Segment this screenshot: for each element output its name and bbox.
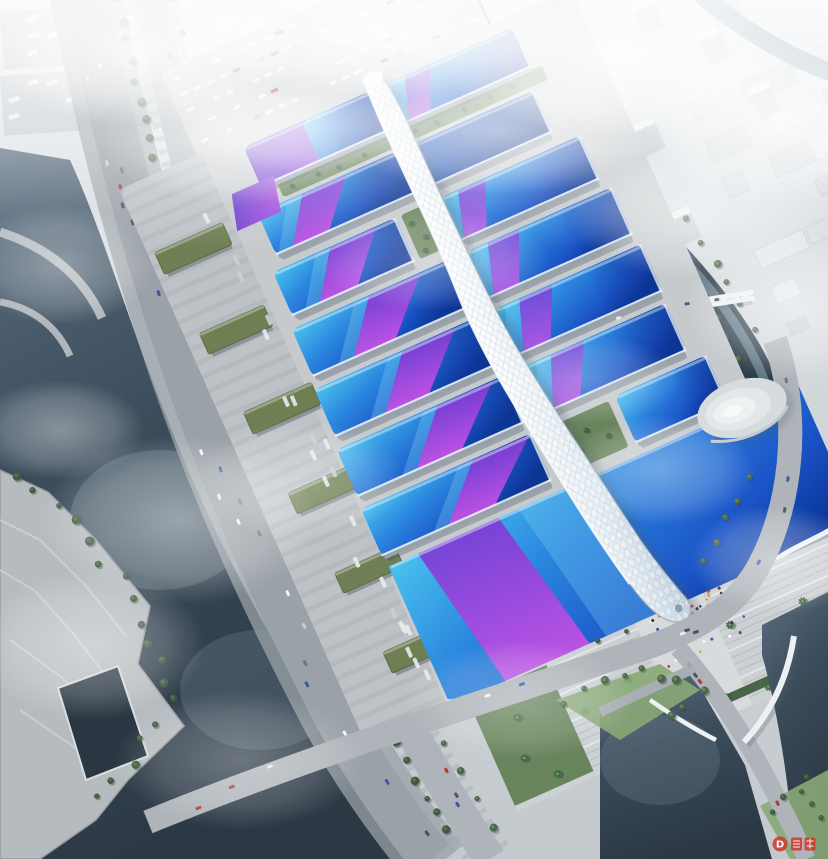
tree-canopy-light — [425, 797, 428, 800]
fog-patch — [500, 335, 680, 425]
tree-canopy-light — [596, 639, 598, 641]
tree-canopy-light — [669, 712, 673, 716]
watermark-logo: D — [773, 837, 816, 852]
tree-canopy-light — [14, 473, 18, 477]
tree-canopy-light — [30, 488, 33, 491]
fog-patch — [115, 690, 365, 830]
tree-canopy-light — [781, 795, 784, 798]
tree-canopy-light — [702, 688, 706, 692]
watermark-text: D — [776, 840, 784, 851]
tree-canopy-light — [805, 775, 808, 778]
tree-canopy-light — [658, 676, 662, 680]
aerial-rendering: D — [0, 0, 828, 859]
fog-patch — [310, 210, 550, 310]
tree-canopy-light — [491, 825, 495, 829]
scene-canvas: D — [0, 0, 828, 859]
tree-canopy-light — [443, 827, 447, 831]
tree-canopy-light — [475, 797, 477, 799]
tree-canopy-light — [639, 666, 642, 669]
fog-patch — [565, 415, 755, 525]
fog-patch — [170, 83, 430, 173]
tree-canopy-light — [625, 630, 627, 632]
tree-canopy-light — [434, 809, 437, 812]
tree-canopy-light — [810, 802, 813, 805]
tree-canopy-light — [108, 778, 111, 781]
tree-canopy-light — [95, 794, 98, 797]
tree-canopy-light — [673, 677, 677, 681]
tree-canopy-light — [458, 768, 462, 772]
fog-patch — [195, 420, 405, 540]
tree-canopy-light — [680, 705, 683, 708]
tree-canopy-light — [819, 816, 822, 819]
tree-canopy-light — [412, 778, 416, 782]
tree-canopy-light — [800, 790, 802, 792]
tree-canopy-light — [404, 758, 407, 761]
tree-canopy-light — [771, 810, 773, 812]
fog-patch — [405, 640, 635, 760]
